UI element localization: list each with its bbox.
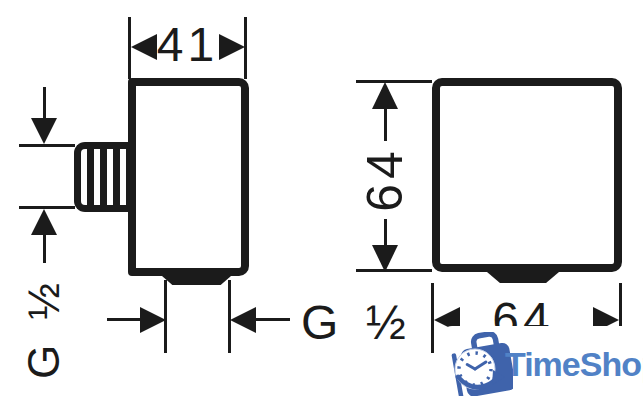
thread-dim-stem-top [43,87,46,118]
dim-arrow-up-icon [372,82,398,109]
side-outlet-stub [162,276,231,285]
outlet-dim-line-right [256,318,290,321]
outlet-dim-line-left [107,318,141,321]
front-outlet-stub [487,272,559,283]
technical-drawing-canvas: 41 G ½ G ½ 64 [0,0,643,400]
front-view-body [432,78,622,272]
dim-arrow-up-icon [31,209,57,235]
dim-label-inlet-thread: G ½ [22,281,66,379]
dim-label-height-64: 64 [360,146,410,212]
dim-label-outlet-thread: G ½ [301,299,408,347]
thread-dim-stem-bottom [43,235,46,263]
watermark-brand-text: TimeShop [505,344,643,385]
dim-label-width-41: 41 [152,21,223,69]
height-dim-stem-top [384,109,387,141]
threaded-inlet [74,142,130,212]
dim-arrow-right-icon [140,307,166,333]
shopping-bag-icon [450,332,513,396]
side-view-body [128,78,249,276]
thread-dim-line-top [19,144,75,147]
dim-arrow-left-icon [230,307,256,333]
dim-arrow-down-icon [31,118,57,144]
dim-arrow-down-icon [372,245,398,272]
height-dim-stem-bottom [384,219,387,245]
